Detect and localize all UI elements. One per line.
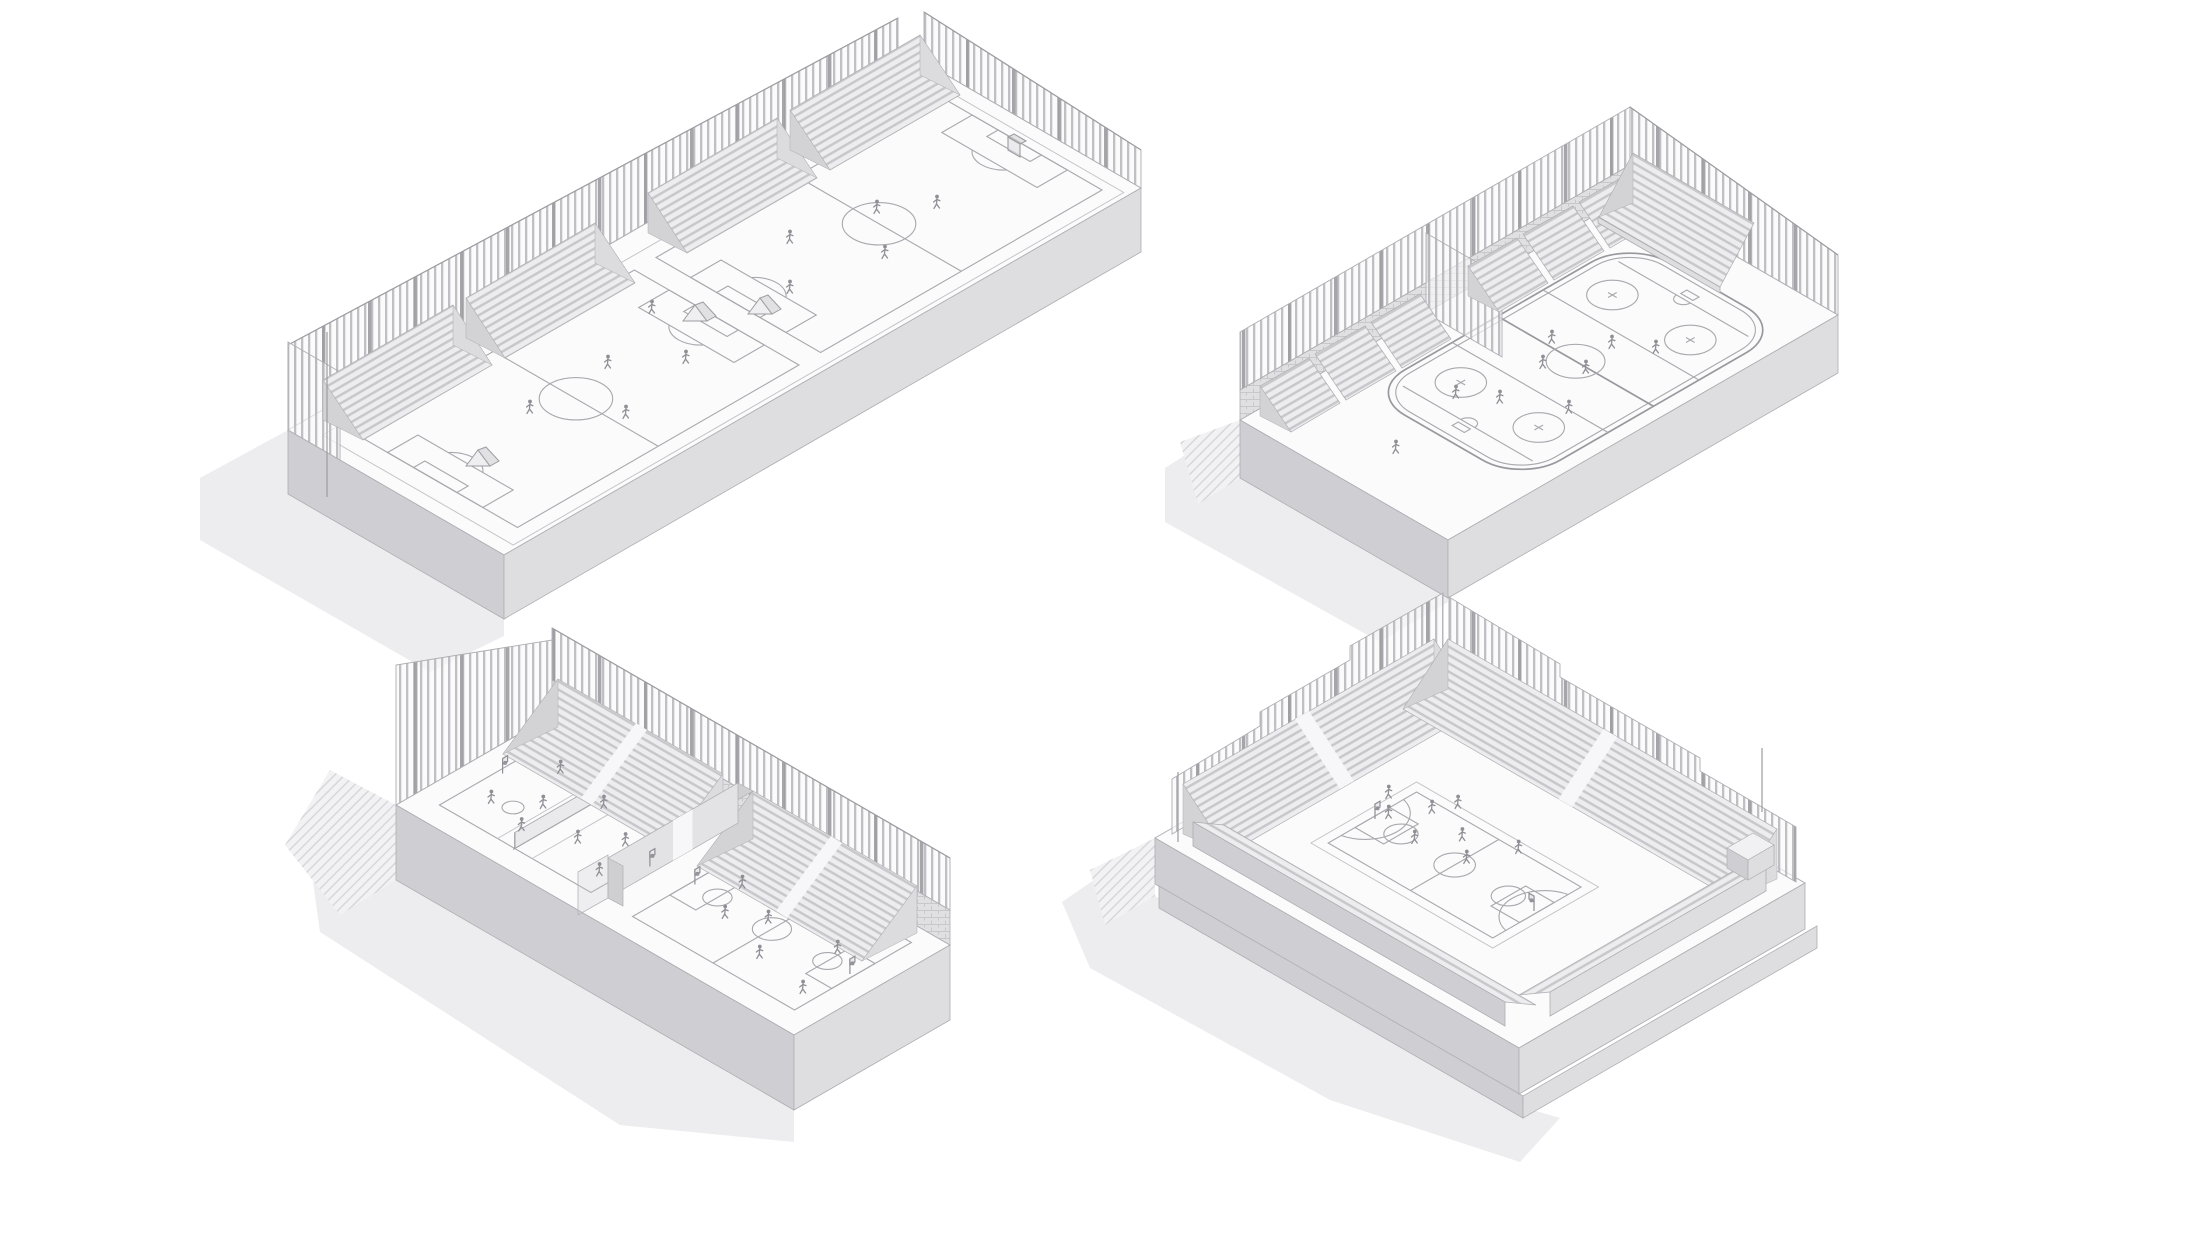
panel-soccer-fields [200,12,1141,672]
panel-dual-courts [285,628,950,1142]
drawing-sheet [0,0,2200,1238]
panel-ice-rink [1165,107,1838,642]
panel-basketball-arena [1062,593,1817,1162]
